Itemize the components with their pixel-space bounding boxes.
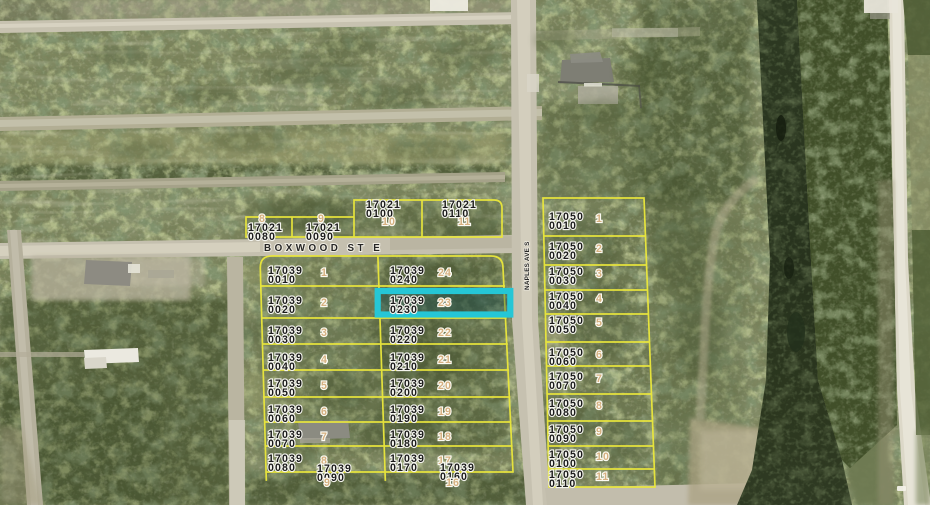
svg-text:22: 22 — [438, 327, 452, 339]
svg-text:0030: 0030 — [268, 334, 296, 346]
svg-text:0220: 0220 — [390, 334, 418, 346]
svg-text:3: 3 — [321, 327, 328, 339]
svg-text:1: 1 — [321, 267, 328, 279]
svg-text:NAPLES AVE S: NAPLES AVE S — [524, 241, 531, 290]
svg-text:0210: 0210 — [390, 361, 418, 373]
svg-text:0040: 0040 — [549, 300, 577, 312]
svg-text:0060: 0060 — [268, 413, 296, 425]
svg-text:0030: 0030 — [549, 275, 577, 287]
svg-text:21: 21 — [438, 354, 452, 366]
svg-text:23: 23 — [438, 297, 452, 309]
svg-text:0200: 0200 — [390, 387, 418, 399]
svg-text:0080: 0080 — [268, 462, 296, 474]
svg-text:0020: 0020 — [268, 304, 296, 316]
svg-text:18: 18 — [438, 431, 452, 443]
svg-text:9: 9 — [324, 477, 331, 489]
svg-text:0060: 0060 — [549, 356, 577, 368]
svg-text:0020: 0020 — [549, 250, 577, 262]
svg-text:0170: 0170 — [390, 462, 418, 474]
svg-text:0240: 0240 — [390, 274, 418, 286]
svg-text:0190: 0190 — [390, 413, 418, 425]
svg-text:4: 4 — [321, 354, 328, 366]
svg-text:5: 5 — [596, 317, 603, 329]
svg-text:2: 2 — [596, 243, 603, 255]
svg-text:24: 24 — [438, 267, 452, 279]
svg-text:0010: 0010 — [549, 220, 577, 232]
svg-text:1: 1 — [596, 213, 603, 225]
svg-text:9: 9 — [318, 213, 325, 225]
svg-text:11: 11 — [458, 216, 471, 228]
svg-text:16: 16 — [446, 477, 460, 489]
svg-text:7: 7 — [596, 373, 603, 385]
svg-text:0010: 0010 — [268, 274, 296, 286]
svg-text:0040: 0040 — [268, 361, 296, 373]
svg-text:0090: 0090 — [549, 433, 577, 445]
svg-text:0110: 0110 — [549, 478, 576, 490]
svg-text:0050: 0050 — [268, 387, 296, 399]
svg-text:6: 6 — [596, 349, 603, 361]
svg-text:0050: 0050 — [549, 324, 577, 336]
svg-text:11: 11 — [596, 471, 609, 483]
svg-text:4: 4 — [596, 293, 603, 305]
svg-text:6: 6 — [321, 406, 328, 418]
svg-text:10: 10 — [382, 216, 396, 228]
svg-text:2: 2 — [321, 297, 328, 309]
svg-text:0180: 0180 — [390, 438, 418, 450]
svg-text:19: 19 — [438, 406, 452, 418]
svg-text:BOXWOOD ST E: BOXWOOD ST E — [264, 243, 383, 254]
svg-text:8: 8 — [596, 400, 603, 412]
svg-text:0090: 0090 — [306, 231, 334, 243]
svg-text:0070: 0070 — [549, 380, 577, 392]
svg-text:0080: 0080 — [248, 231, 276, 243]
svg-text:5: 5 — [321, 380, 328, 392]
svg-text:0230: 0230 — [390, 304, 418, 316]
svg-text:3: 3 — [596, 268, 603, 280]
svg-text:0070: 0070 — [268, 438, 296, 450]
svg-text:7: 7 — [321, 431, 328, 443]
svg-text:10: 10 — [596, 451, 610, 463]
svg-text:0080: 0080 — [549, 407, 577, 419]
svg-text:8: 8 — [259, 213, 266, 225]
svg-text:9: 9 — [596, 426, 603, 438]
svg-text:20: 20 — [438, 380, 452, 392]
